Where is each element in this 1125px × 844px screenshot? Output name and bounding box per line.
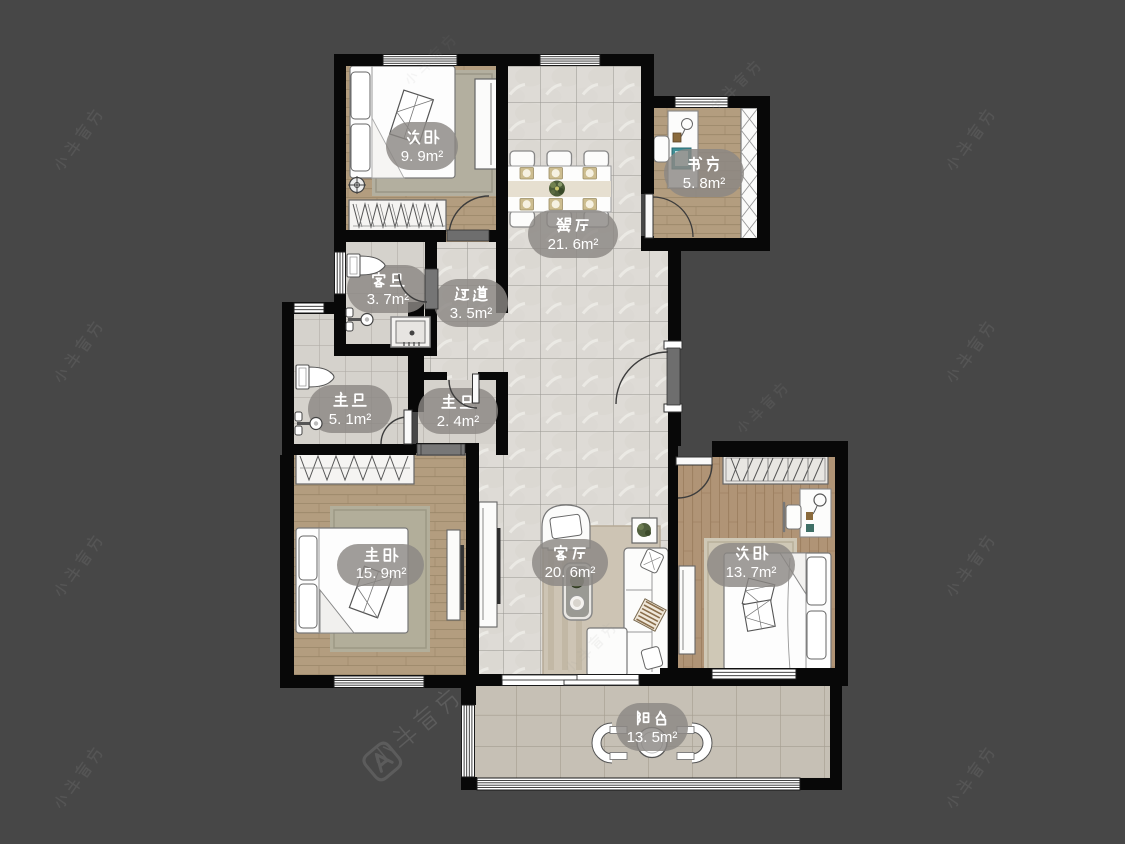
svg-text:3. 7m²: 3. 7m² (367, 291, 410, 308)
svg-text:13. 5m²: 13. 5m² (627, 729, 678, 746)
svg-text:13. 7m²: 13. 7m² (726, 564, 777, 581)
svg-text:3. 5m²: 3. 5m² (450, 305, 493, 322)
svg-text:20. 6m²: 20. 6m² (545, 564, 596, 581)
svg-text:5. 8m²: 5. 8m² (683, 175, 726, 192)
svg-text:15. 9m²: 15. 9m² (356, 565, 407, 582)
svg-text:21. 6m²: 21. 6m² (548, 236, 599, 253)
svg-text:9. 9m²: 9. 9m² (401, 148, 444, 165)
svg-text:5. 1m²: 5. 1m² (329, 411, 372, 428)
svg-text:2. 4m²: 2. 4m² (437, 413, 480, 430)
